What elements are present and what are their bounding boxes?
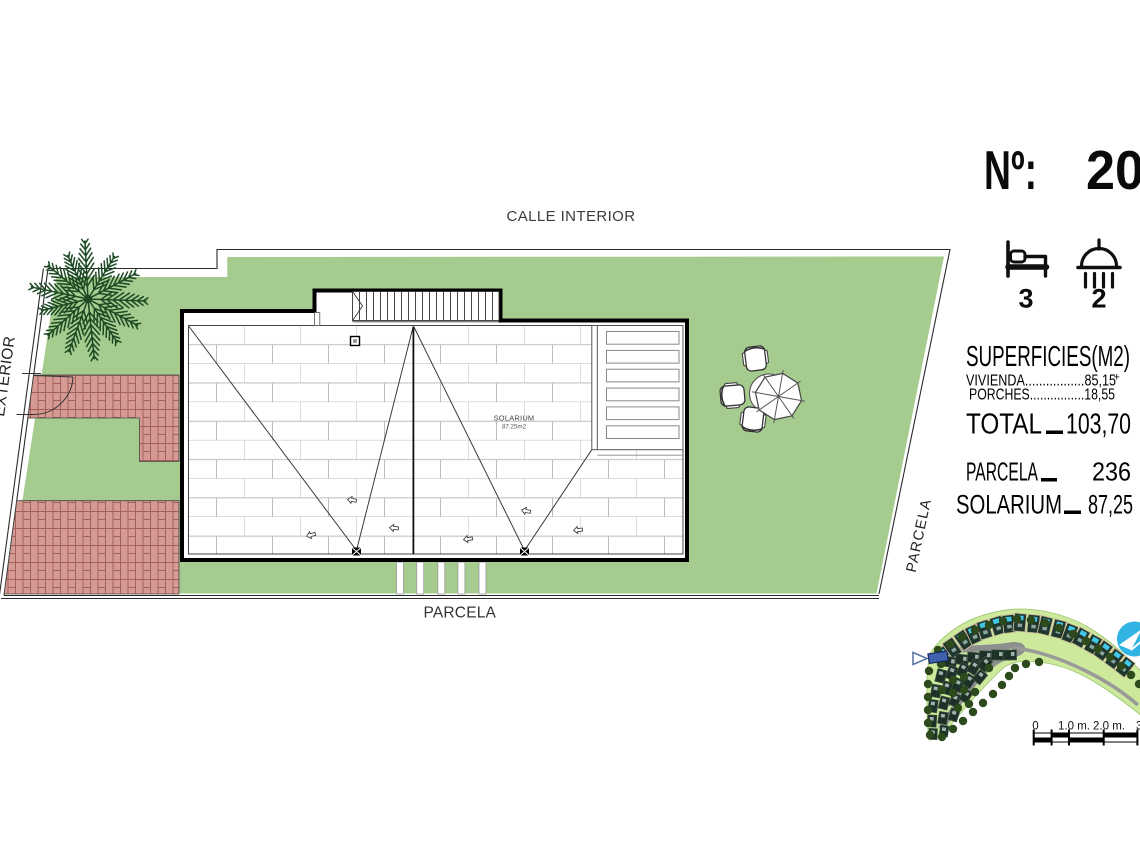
- svg-text:PARCELA: PARCELA: [966, 457, 1038, 487]
- svg-text:236: 236: [1092, 457, 1131, 487]
- svg-text:SUPERFICIES(M2): SUPERFICIES(M2): [966, 341, 1130, 373]
- svg-text:2.0 m.: 2.0 m.: [1093, 721, 1125, 733]
- svg-text:SOLARIUM: SOLARIUM: [494, 414, 535, 423]
- svg-text:PORCHES................18,55: PORCHES................18,55: [969, 387, 1115, 404]
- svg-text:20: 20: [1086, 139, 1140, 201]
- svg-text:1.0 m.: 1.0 m.: [1058, 721, 1090, 733]
- svg-text:103,70: 103,70: [1066, 409, 1131, 441]
- svg-text:PARCELA: PARCELA: [423, 605, 496, 622]
- svg-text:87,25: 87,25: [1088, 490, 1133, 520]
- svg-text:2: 2: [1091, 284, 1106, 314]
- svg-text:SOLARIUM: SOLARIUM: [956, 490, 1062, 520]
- svg-text:3: 3: [1018, 284, 1033, 314]
- svg-text:CALLE INTERIOR: CALLE INTERIOR: [507, 208, 636, 225]
- svg-text:Nº:: Nº:: [984, 139, 1037, 201]
- svg-text:TOTAL: TOTAL: [966, 409, 1042, 441]
- svg-text:+: +: [1114, 372, 1120, 384]
- svg-text:87.25m2: 87.25m2: [502, 424, 527, 431]
